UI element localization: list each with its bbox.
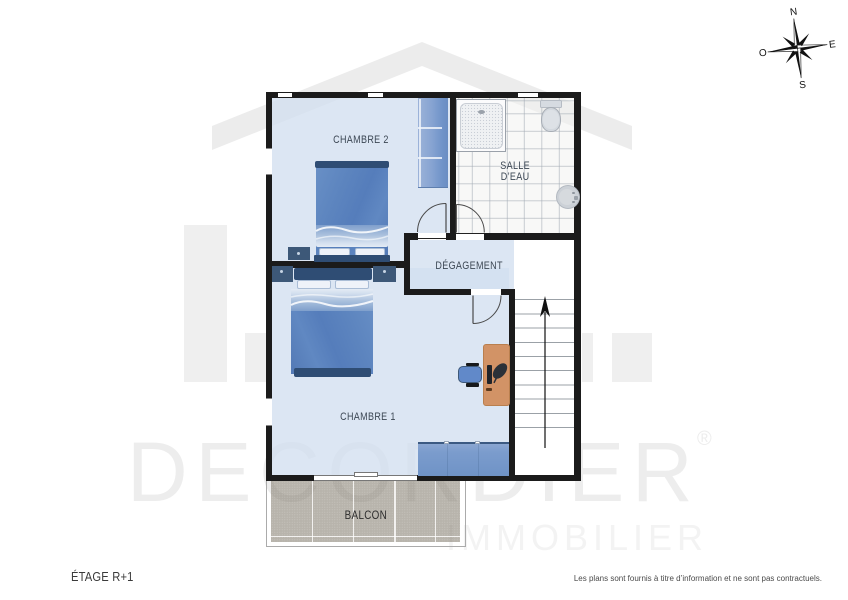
svg-text:N: N	[789, 7, 798, 19]
svg-text:S: S	[799, 80, 807, 92]
svg-text:E: E	[828, 39, 836, 51]
svg-text:O: O	[758, 48, 767, 60]
